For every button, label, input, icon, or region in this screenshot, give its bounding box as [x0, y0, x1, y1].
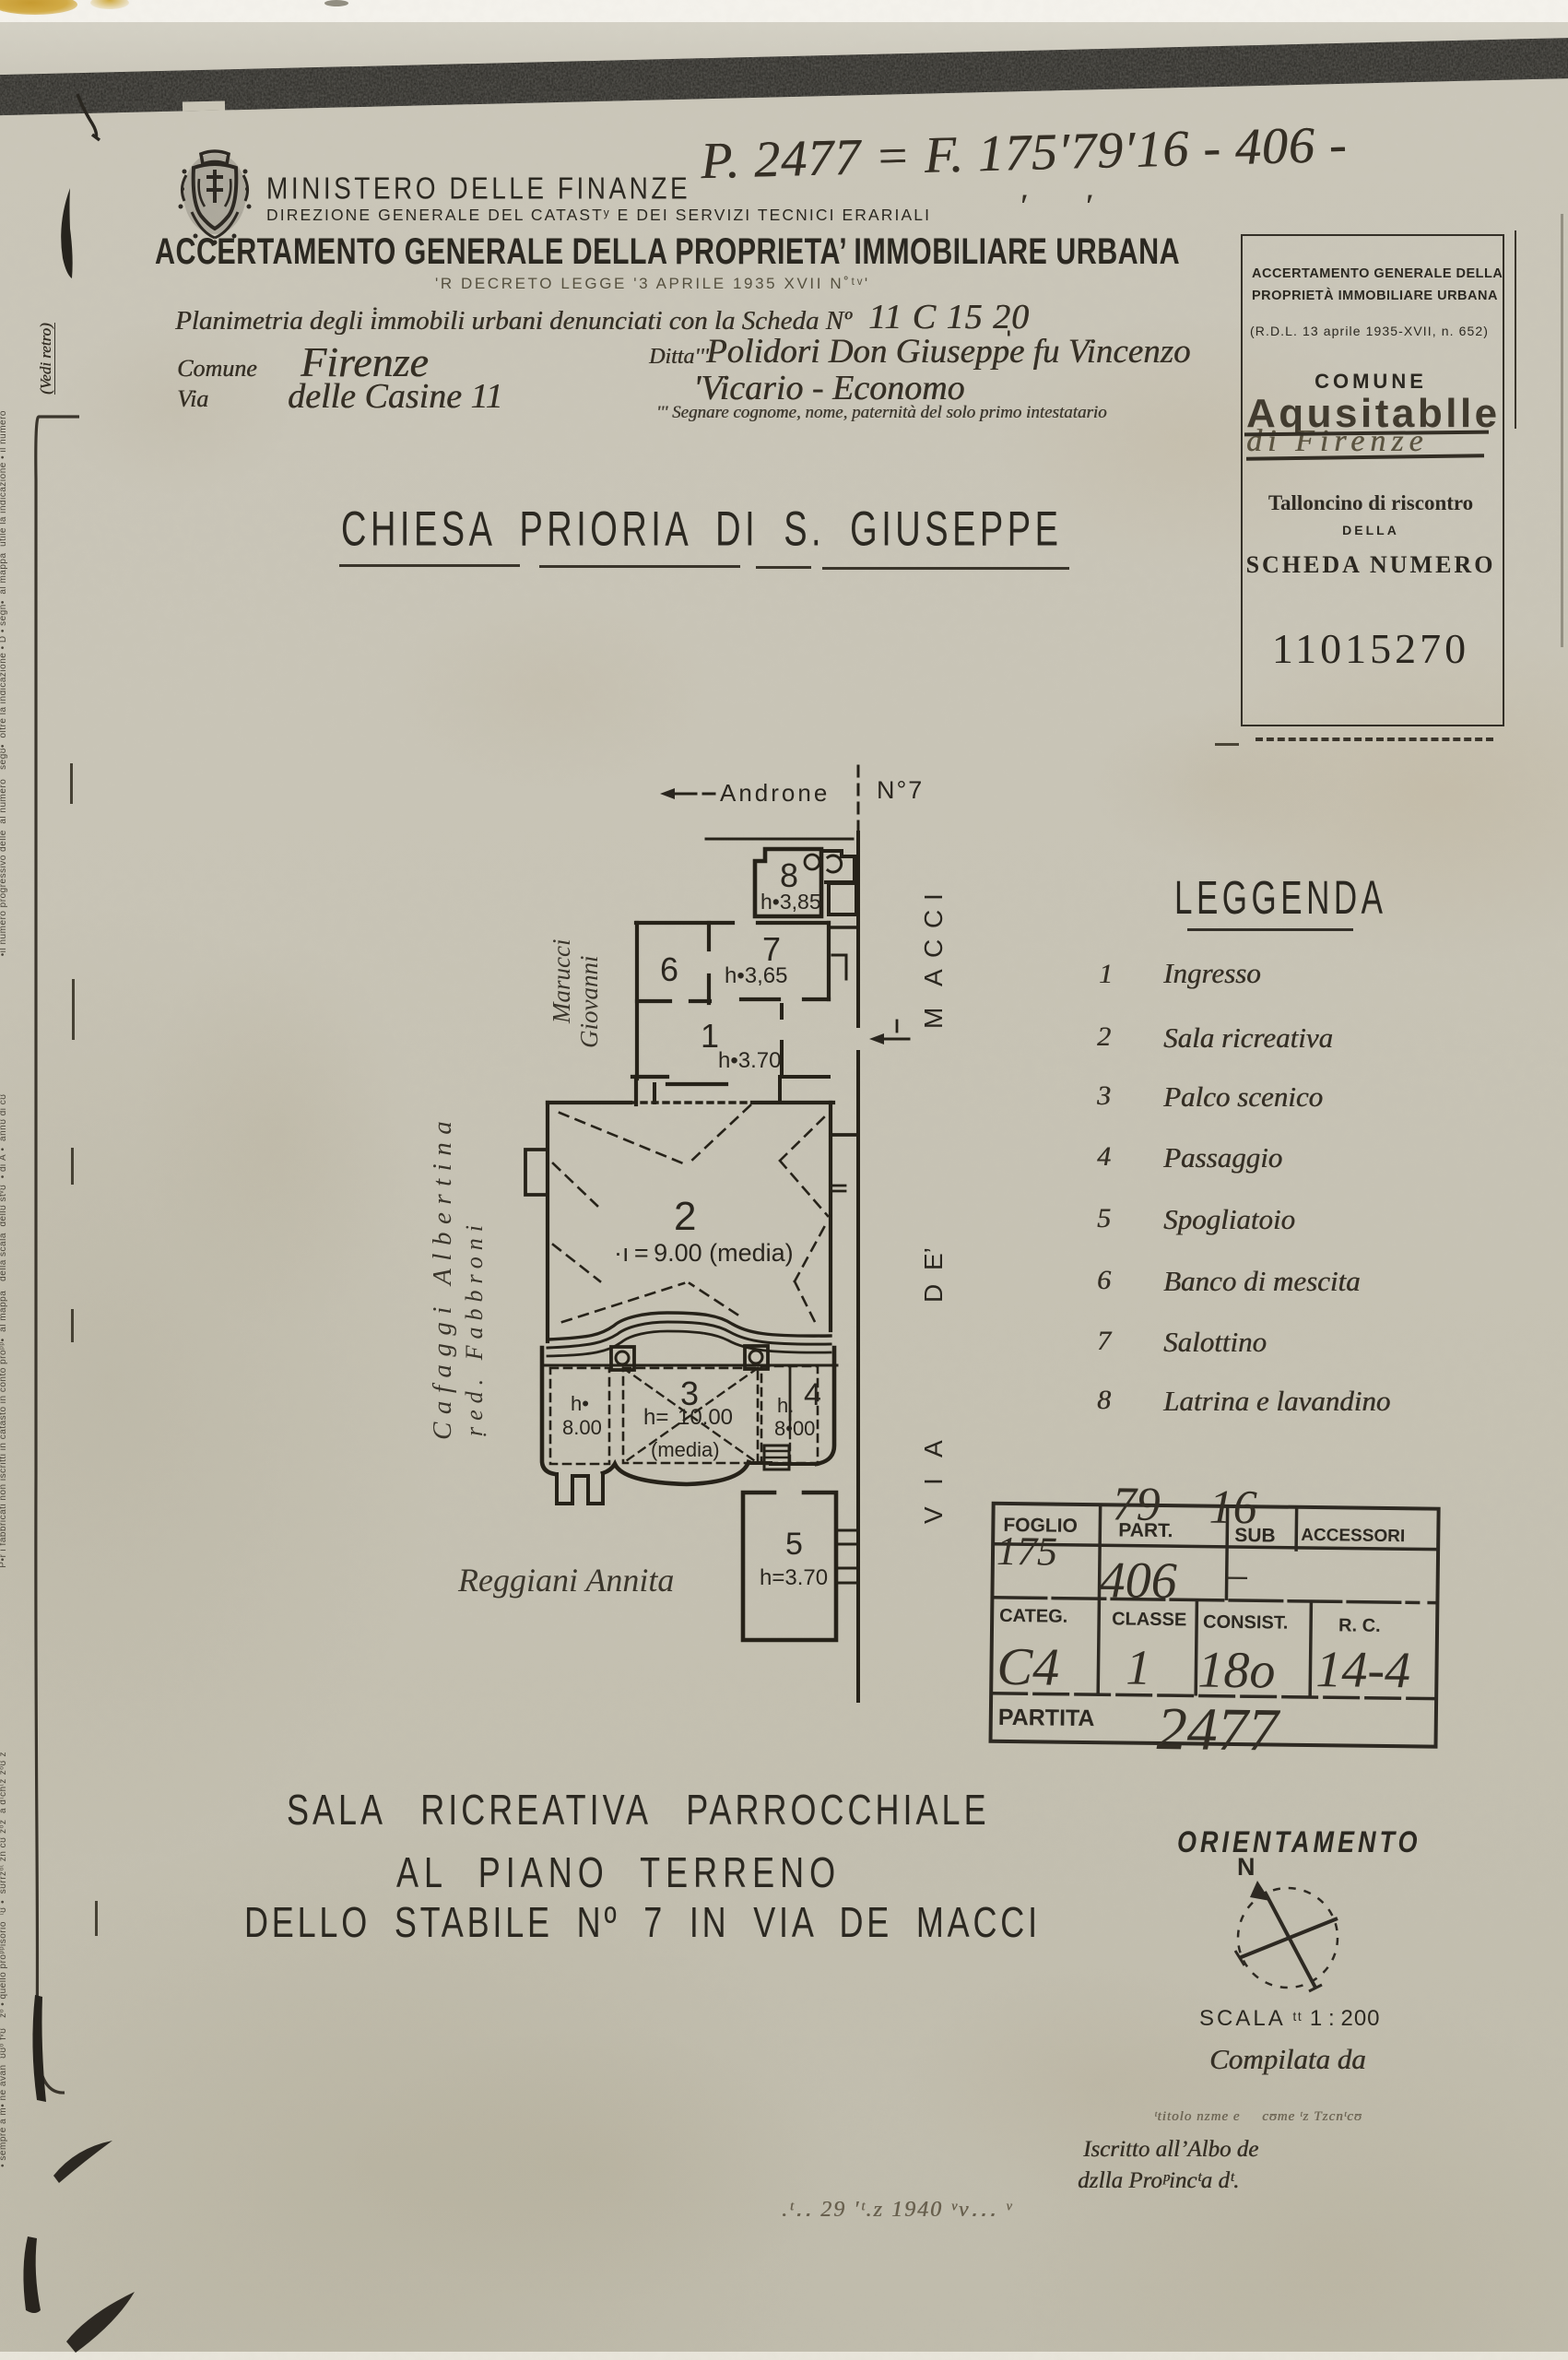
svg-text:D: D — [919, 1284, 948, 1303]
svg-text:ACCESSORI: ACCESSORI — [1301, 1526, 1405, 1546]
svg-text:2477: 2477 — [1156, 1695, 1281, 1764]
svg-text:Giovanni: Giovanni — [575, 956, 603, 1049]
svg-text:6: 6 — [660, 950, 678, 988]
svg-text:h=3.70: h=3.70 — [760, 1565, 828, 1590]
svg-text:79: 79 — [1112, 1478, 1161, 1531]
svg-text:1: 1 — [1126, 1640, 1151, 1695]
svg-text:Androne: Androne — [720, 779, 830, 807]
svg-text:h•3,65: h•3,65 — [725, 963, 787, 988]
svg-text:C: C — [919, 910, 948, 928]
svg-text:M: M — [919, 1008, 948, 1029]
svg-text:Marucci: Marucci — [548, 939, 575, 1024]
svg-text:C4: C4 — [996, 1636, 1059, 1697]
svg-text:I: I — [919, 1478, 948, 1485]
svg-text:8•00: 8•00 — [774, 1417, 815, 1440]
svg-text:8.00: 8.00 — [562, 1416, 602, 1439]
svg-text:N°7: N°7 — [877, 776, 924, 804]
svg-text:CONSIST.: CONSIST. — [1203, 1612, 1289, 1634]
svg-text:I: I — [919, 893, 948, 901]
svg-text:h•3.70: h•3.70 — [718, 1048, 781, 1073]
svg-text:CLASSE: CLASSE — [1112, 1609, 1186, 1630]
svg-text:–: – — [1225, 1552, 1248, 1597]
svg-text:406: 406 — [1099, 1552, 1177, 1610]
svg-text:18o: 18o — [1197, 1642, 1276, 1700]
svg-text:A: A — [919, 1440, 948, 1457]
svg-text:175: 175 — [996, 1528, 1058, 1575]
svg-text:E’: E’ — [919, 1247, 948, 1270]
svg-text:·ı = 9.00 (media): ·ı = 9.00 (media) — [614, 1239, 794, 1267]
svg-text:4: 4 — [804, 1377, 821, 1412]
svg-text:14-4: 14-4 — [1315, 1641, 1410, 1699]
svg-text:A: A — [919, 969, 948, 986]
svg-text:7: 7 — [762, 930, 781, 968]
svg-text:h= 10.00: h= 10.00 — [643, 1405, 733, 1430]
svg-text:R. C.: R. C. — [1338, 1615, 1381, 1636]
svg-text:(media): (media) — [651, 1438, 720, 1461]
svg-text:h.: h. — [777, 1394, 794, 1417]
svg-text:PARTITA: PARTITA — [998, 1705, 1095, 1731]
svg-text:Reggiani Annita: Reggiani Annita — [457, 1562, 674, 1599]
svg-text:16: 16 — [1208, 1481, 1257, 1535]
svg-text:h•: h• — [571, 1392, 589, 1415]
svg-text:C: C — [919, 939, 948, 958]
svg-text:CATEG.: CATEG. — [999, 1606, 1067, 1627]
svg-text:ṛed. Fabbroni: ṛed. Fabbroni — [461, 1219, 488, 1436]
svg-text:5: 5 — [785, 1527, 803, 1562]
svg-text:1: 1 — [701, 1017, 719, 1055]
svg-text:2: 2 — [674, 1194, 696, 1239]
svg-text:Cafaggi Albertina: Cafaggi Albertina — [428, 1114, 457, 1440]
svg-text:8: 8 — [780, 856, 798, 894]
svg-text:V: V — [919, 1506, 948, 1524]
svg-text:h•3,85: h•3,85 — [760, 890, 821, 914]
